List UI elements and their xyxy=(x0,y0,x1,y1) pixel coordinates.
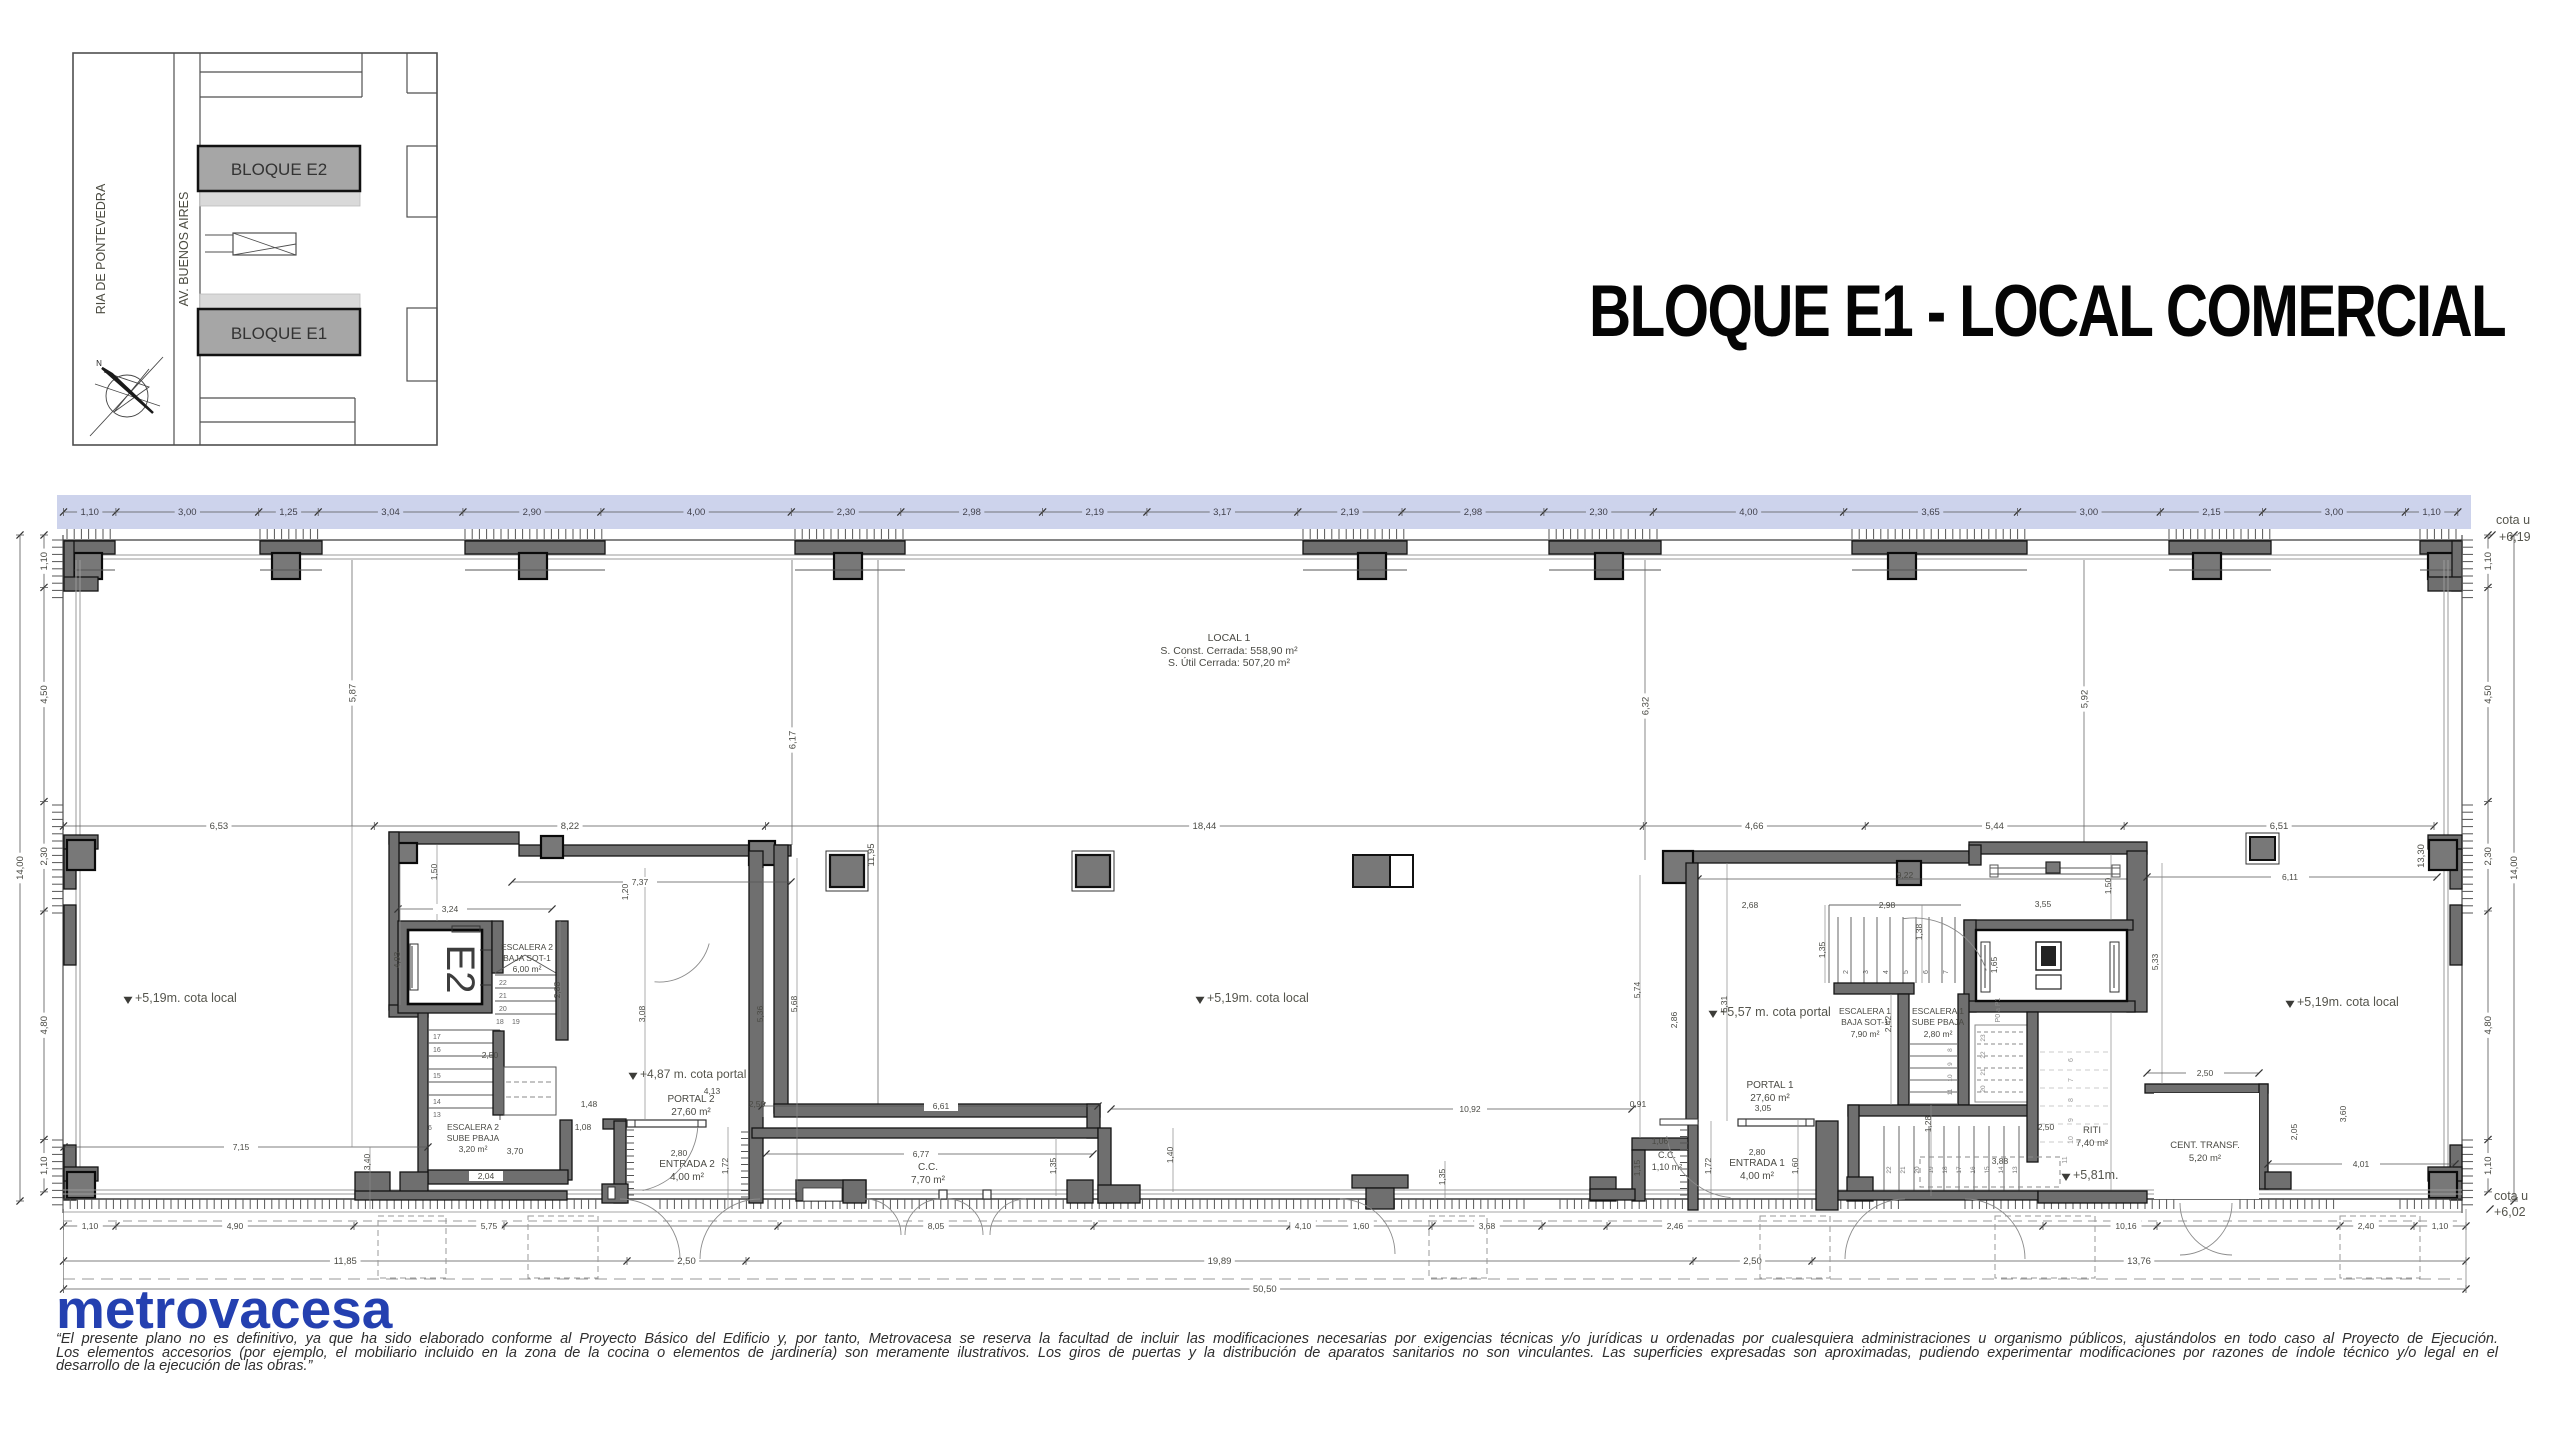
svg-text:11: 11 xyxy=(1947,1088,1954,1095)
svg-text:17: 17 xyxy=(433,1034,441,1041)
svg-text:1,50: 1,50 xyxy=(2103,877,2113,894)
svg-text:5,31: 5,31 xyxy=(1719,995,1729,1012)
svg-text:2,50: 2,50 xyxy=(749,1099,766,1109)
svg-text:cota u: cota u xyxy=(2496,513,2530,527)
svg-text:3: 3 xyxy=(1863,970,1870,974)
svg-text:1,10: 1,10 xyxy=(2432,1221,2449,1231)
svg-text:2,86: 2,86 xyxy=(1669,1011,1679,1028)
svg-text:19: 19 xyxy=(1928,1166,1935,1174)
svg-text:8,05: 8,05 xyxy=(928,1221,945,1231)
svg-text:1,10: 1,10 xyxy=(82,1221,99,1231)
svg-text:4: 4 xyxy=(1883,970,1890,974)
svg-text:BAJA SOT-1: BAJA SOT-1 xyxy=(1841,1017,1889,1027)
svg-text:13: 13 xyxy=(2012,1166,2019,1174)
svg-text:ESCALERA 1: ESCALERA 1 xyxy=(1839,1006,1891,1016)
svg-text:ESCALERA 2: ESCALERA 2 xyxy=(501,942,553,952)
svg-text:C.C.: C.C. xyxy=(918,1162,938,1173)
svg-text:3,05: 3,05 xyxy=(1755,1103,1772,1113)
svg-text:5,20 m²: 5,20 m² xyxy=(2189,1153,2221,1164)
svg-text:+6,19: +6,19 xyxy=(2499,530,2531,544)
svg-text:16: 16 xyxy=(1970,1166,1977,1174)
svg-text:1,10: 1,10 xyxy=(80,507,99,518)
svg-text:2,98: 2,98 xyxy=(1464,507,1483,518)
svg-text:1,10: 1,10 xyxy=(2483,552,2494,571)
svg-text:7,15: 7,15 xyxy=(233,1142,250,1152)
svg-text:1,60: 1,60 xyxy=(1353,1221,1370,1231)
svg-text:cota u: cota u xyxy=(2494,1189,2528,1203)
svg-text:1,15: 1,15 xyxy=(1632,1159,1642,1176)
svg-text:1,35: 1,35 xyxy=(1437,1168,1447,1185)
svg-text:2,68: 2,68 xyxy=(1742,900,1759,910)
svg-text:1,10: 1,10 xyxy=(2483,1156,2494,1175)
svg-text:2,30: 2,30 xyxy=(2483,847,2494,866)
svg-text:S. Útil Cerrada: 507,20 m²: S. Útil Cerrada: 507,20 m² xyxy=(1168,656,1290,669)
svg-text:9: 9 xyxy=(1947,1062,1954,1066)
svg-text:7: 7 xyxy=(1943,970,1950,974)
svg-text:7,37: 7,37 xyxy=(632,877,649,887)
svg-text:+5,81m.: +5,81m. xyxy=(2073,1168,2119,1182)
svg-text:5,75: 5,75 xyxy=(481,1221,498,1231)
svg-text:21: 21 xyxy=(499,993,507,1000)
svg-text:6,17: 6,17 xyxy=(788,731,799,750)
svg-text:3,24: 3,24 xyxy=(442,904,459,914)
svg-text:2,80: 2,80 xyxy=(671,1148,688,1158)
svg-text:4,50: 4,50 xyxy=(2483,685,2494,704)
svg-text:1,20: 1,20 xyxy=(620,883,630,900)
svg-text:1,10: 1,10 xyxy=(39,1156,50,1175)
svg-text:N: N xyxy=(96,359,102,368)
svg-text:11,85: 11,85 xyxy=(334,1256,357,1267)
svg-text:4,80: 4,80 xyxy=(39,1016,50,1035)
svg-text:11,95: 11,95 xyxy=(866,843,877,866)
svg-text:AV. BUENOS AIRES: AV. BUENOS AIRES xyxy=(177,192,191,307)
svg-text:1,35: 1,35 xyxy=(1817,941,1827,958)
svg-text:19,89: 19,89 xyxy=(1208,1256,1232,1267)
svg-text:20: 20 xyxy=(1980,1085,1987,1093)
svg-text:21: 21 xyxy=(1900,1166,1907,1174)
svg-text:5,87: 5,87 xyxy=(348,684,359,703)
svg-text:+5,19m. cota local: +5,19m. cota local xyxy=(2297,995,2399,1009)
svg-text:2,50: 2,50 xyxy=(482,1050,499,1060)
svg-text:6: 6 xyxy=(1923,970,1930,974)
svg-text:6,61: 6,61 xyxy=(933,1101,950,1111)
svg-text:9: 9 xyxy=(2068,1118,2075,1122)
svg-text:5,68: 5,68 xyxy=(789,995,799,1012)
svg-text:2,40: 2,40 xyxy=(2358,1221,2375,1231)
svg-text:BAJA SOT-1: BAJA SOT-1 xyxy=(503,953,551,963)
svg-text:SUBE PBAJA: SUBE PBAJA xyxy=(447,1133,500,1143)
svg-text:ESCALERA 2: ESCALERA 2 xyxy=(447,1122,499,1132)
svg-text:2,80 m²: 2,80 m² xyxy=(1924,1029,1953,1039)
svg-text:+5,57 m. cota portal: +5,57 m. cota portal xyxy=(1720,1005,1831,1019)
svg-text:P0 a P1: P0 a P1 xyxy=(1995,997,2002,1022)
svg-text:6: 6 xyxy=(2068,1058,2075,1062)
svg-text:5,36: 5,36 xyxy=(755,1005,765,1022)
svg-text:3,00: 3,00 xyxy=(2080,507,2099,518)
svg-text:23: 23 xyxy=(1980,1034,1987,1042)
svg-text:1,38: 1,38 xyxy=(1914,923,1924,940)
svg-text:15: 15 xyxy=(1984,1166,1991,1174)
svg-text:2,90: 2,90 xyxy=(523,507,542,518)
svg-text:LOCAL 1: LOCAL 1 xyxy=(1208,632,1251,644)
svg-text:1,06: 1,06 xyxy=(1652,1136,1669,1146)
svg-text:17: 17 xyxy=(1956,1166,1963,1174)
svg-text:5,33: 5,33 xyxy=(2150,953,2160,970)
svg-text:4,00: 4,00 xyxy=(1739,507,1758,518)
svg-text:18,44: 18,44 xyxy=(1193,821,1217,832)
svg-text:2,50: 2,50 xyxy=(2038,1122,2055,1132)
svg-text:ENTRADA 1: ENTRADA 1 xyxy=(1729,1158,1785,1169)
svg-text:7,40 m²: 7,40 m² xyxy=(2076,1138,2108,1149)
svg-text:13: 13 xyxy=(433,1112,441,1119)
svg-text:22: 22 xyxy=(1886,1166,1893,1174)
svg-text:3,70: 3,70 xyxy=(507,1146,524,1156)
svg-text:6,00 m²: 6,00 m² xyxy=(513,964,542,974)
svg-text:4,01: 4,01 xyxy=(2353,1159,2370,1169)
svg-text:18: 18 xyxy=(496,1019,504,1026)
svg-text:RITI: RITI xyxy=(2083,1125,2101,1136)
svg-text:1,65: 1,65 xyxy=(1989,956,1999,973)
svg-text:2,88: 2,88 xyxy=(552,981,562,998)
svg-text:SUBE PBAJA: SUBE PBAJA xyxy=(1912,1017,1965,1027)
svg-text:2,04: 2,04 xyxy=(478,1171,495,1181)
svg-text:18: 18 xyxy=(1942,1166,1949,1174)
svg-text:3,65: 3,65 xyxy=(1921,507,1940,518)
svg-text:6,77: 6,77 xyxy=(913,1149,930,1159)
svg-text:3,55: 3,55 xyxy=(2035,899,2052,909)
svg-text:1,50: 1,50 xyxy=(429,863,439,880)
svg-text:3,08: 3,08 xyxy=(637,1005,647,1022)
svg-text:2,05: 2,05 xyxy=(2289,1123,2299,1140)
svg-text:+5,19m. cota local: +5,19m. cota local xyxy=(1207,991,1309,1005)
svg-text:21: 21 xyxy=(1980,1068,1987,1076)
svg-text:2,30: 2,30 xyxy=(837,507,856,518)
svg-text:7,70 m²: 7,70 m² xyxy=(911,1175,946,1186)
svg-text:22: 22 xyxy=(499,980,507,987)
svg-text:10: 10 xyxy=(1947,1074,1954,1082)
svg-text:1,08: 1,08 xyxy=(575,1122,592,1132)
svg-text:7: 7 xyxy=(2068,1078,2075,1082)
svg-text:4,13: 4,13 xyxy=(704,1086,721,1096)
svg-text:4,10: 4,10 xyxy=(1295,1221,1312,1231)
svg-text:2,50: 2,50 xyxy=(1743,1256,1762,1267)
svg-text:+5,19m. cota local: +5,19m. cota local xyxy=(135,991,237,1005)
svg-text:BLOQUE E1: BLOQUE E1 xyxy=(231,324,327,343)
svg-text:50,50: 50,50 xyxy=(1253,1284,1277,1295)
svg-text:5,92: 5,92 xyxy=(2080,690,2091,709)
svg-text:4,00 m²: 4,00 m² xyxy=(1740,1171,1775,1182)
svg-text:S. Const. Cerrada: 558,90 m²: S. Const. Cerrada: 558,90 m² xyxy=(1160,645,1298,657)
svg-text:2,30: 2,30 xyxy=(1589,507,1608,518)
svg-text:6: 6 xyxy=(428,1125,432,1132)
svg-text:2,15: 2,15 xyxy=(2202,507,2221,518)
svg-text:2,46: 2,46 xyxy=(1667,1221,1684,1231)
svg-text:10,92: 10,92 xyxy=(1459,1104,1481,1114)
svg-text:5: 5 xyxy=(1903,970,1910,974)
svg-text:CENT. TRANSF.: CENT. TRANSF. xyxy=(2170,1140,2240,1151)
svg-text:1,35: 1,35 xyxy=(1048,1157,1058,1174)
svg-text:1,48: 1,48 xyxy=(581,1099,598,1109)
svg-text:1,72: 1,72 xyxy=(1703,1157,1713,1174)
svg-text:2,30: 2,30 xyxy=(39,847,50,866)
svg-text:9,22: 9,22 xyxy=(1897,870,1914,880)
svg-text:4,50: 4,50 xyxy=(39,685,50,704)
svg-text:1,72: 1,72 xyxy=(720,1157,730,1174)
svg-text:8: 8 xyxy=(1947,1048,1954,1052)
svg-text:1,10 m²: 1,10 m² xyxy=(1652,1162,1683,1172)
svg-text:1,25: 1,25 xyxy=(279,507,298,518)
svg-text:14: 14 xyxy=(1998,1166,2005,1174)
svg-text:2,19: 2,19 xyxy=(1341,507,1360,518)
svg-text:2,98: 2,98 xyxy=(1879,900,1896,910)
svg-text:5,44: 5,44 xyxy=(1985,821,2004,832)
svg-text:2,42: 2,42 xyxy=(1883,1015,1893,1032)
svg-text:+4,87 m. cota portal: +4,87 m. cota portal xyxy=(640,1067,746,1081)
svg-text:8,22: 8,22 xyxy=(561,821,580,832)
svg-text:14: 14 xyxy=(433,1099,441,1106)
svg-text:14,00: 14,00 xyxy=(15,856,26,880)
svg-text:10: 10 xyxy=(2068,1136,2075,1144)
svg-text:4,80: 4,80 xyxy=(2483,1016,2494,1035)
svg-text:E2: E2 xyxy=(438,945,482,994)
svg-text:19: 19 xyxy=(512,1019,520,1026)
svg-text:2,80: 2,80 xyxy=(1749,1147,1766,1157)
svg-text:5,74: 5,74 xyxy=(1632,981,1642,998)
svg-text:15: 15 xyxy=(433,1073,441,1080)
svg-text:2: 2 xyxy=(1843,970,1850,974)
svg-text:3,00: 3,00 xyxy=(178,507,197,518)
svg-text:3,40: 3,40 xyxy=(362,1153,372,1170)
svg-text:6,51: 6,51 xyxy=(2270,821,2289,832)
svg-text:1,60: 1,60 xyxy=(1790,1157,1800,1174)
svg-text:PORTAL 1: PORTAL 1 xyxy=(1746,1080,1793,1091)
svg-text:2,98: 2,98 xyxy=(962,507,981,518)
svg-text:27,60 m²: 27,60 m² xyxy=(671,1107,711,1118)
svg-text:2,19: 2,19 xyxy=(1086,507,1105,518)
svg-text:3,17: 3,17 xyxy=(1213,507,1232,518)
svg-text:13,30: 13,30 xyxy=(2416,844,2427,868)
svg-text:6,53: 6,53 xyxy=(210,821,229,832)
svg-text:BLOQUE E2: BLOQUE E2 xyxy=(231,160,327,179)
svg-text:ENTRADA 2: ENTRADA 2 xyxy=(659,1159,715,1170)
svg-text:4,90: 4,90 xyxy=(227,1221,244,1231)
svg-text:1,40: 1,40 xyxy=(1165,1146,1175,1163)
svg-text:20: 20 xyxy=(499,1006,507,1013)
svg-text:14,00: 14,00 xyxy=(2509,856,2520,880)
svg-text:11: 11 xyxy=(2062,1156,2069,1163)
svg-text:4,03: 4,03 xyxy=(392,951,402,968)
svg-text:22: 22 xyxy=(1980,1051,1987,1059)
svg-text:3,60: 3,60 xyxy=(2338,1105,2348,1122)
svg-text:1,10: 1,10 xyxy=(39,552,50,571)
svg-text:3,88: 3,88 xyxy=(1992,1156,2009,1166)
svg-text:4,00 m²: 4,00 m² xyxy=(670,1172,705,1183)
svg-text:RIA DE PONTEVEDRA: RIA DE PONTEVEDRA xyxy=(94,183,108,314)
svg-text:7,90 m²: 7,90 m² xyxy=(1851,1029,1880,1039)
svg-text:4,00: 4,00 xyxy=(687,507,706,518)
svg-text:ESCALERA 1: ESCALERA 1 xyxy=(1912,1006,1964,1016)
svg-text:13,76: 13,76 xyxy=(2127,1256,2151,1267)
svg-text:3,20 m²: 3,20 m² xyxy=(459,1144,488,1154)
svg-text:8: 8 xyxy=(2068,1098,2075,1102)
svg-text:3,00: 3,00 xyxy=(2325,507,2344,518)
svg-text:6,11: 6,11 xyxy=(2282,872,2298,882)
svg-text:6,32: 6,32 xyxy=(1641,697,1652,716)
svg-text:+6,02: +6,02 xyxy=(2494,1205,2526,1219)
svg-text:4,66: 4,66 xyxy=(1745,821,1764,832)
svg-text:3,04: 3,04 xyxy=(381,507,400,518)
svg-text:10,16: 10,16 xyxy=(2115,1221,2137,1231)
svg-text:2,50: 2,50 xyxy=(2197,1068,2214,1078)
svg-text:0,91: 0,91 xyxy=(1630,1099,1647,1109)
svg-text:1,10: 1,10 xyxy=(2422,507,2441,518)
svg-text:1,28: 1,28 xyxy=(1923,1115,1933,1132)
svg-text:16: 16 xyxy=(433,1047,441,1054)
